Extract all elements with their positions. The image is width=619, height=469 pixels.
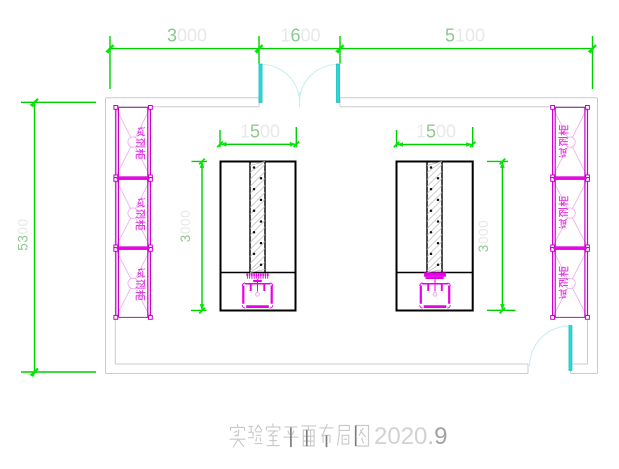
svg-text:1500: 1500 — [416, 122, 456, 142]
svg-text:5100: 5100 — [445, 26, 485, 46]
svg-text:3000: 3000 — [476, 220, 491, 252]
svg-text:2020.9: 2020.9 — [374, 423, 447, 450]
svg-text:3000: 3000 — [167, 26, 207, 46]
svg-text:3000: 3000 — [178, 210, 193, 242]
svg-text:5300: 5300 — [16, 218, 31, 250]
svg-text:1500: 1500 — [240, 122, 280, 142]
svg-text:1600: 1600 — [280, 26, 320, 46]
